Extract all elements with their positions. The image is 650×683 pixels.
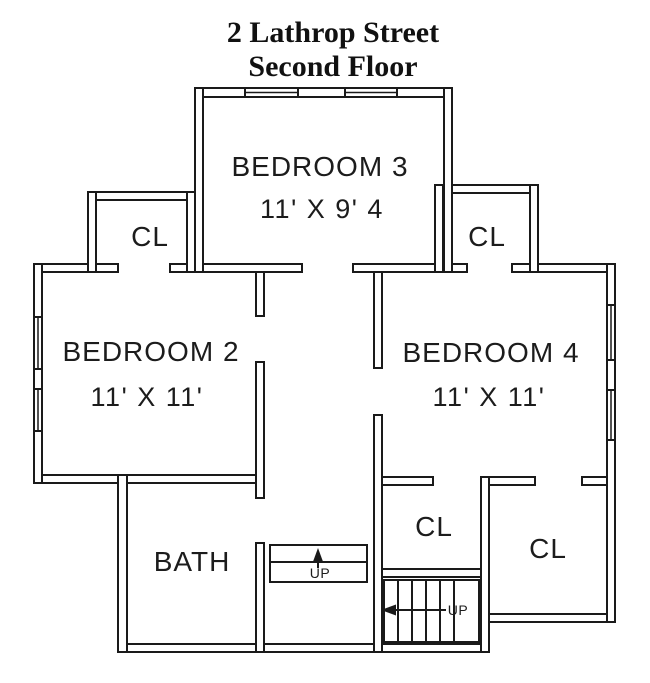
- bedroom4-label: BEDROOM 4: [402, 337, 579, 368]
- closet-bottom-right-label: CL: [529, 533, 567, 564]
- closet-top-right-label: CL: [468, 221, 506, 252]
- wall-bedroom3-right: [444, 88, 452, 272]
- attic-stair-indicator: UP: [270, 545, 367, 582]
- wall-closet-top-left-left: [88, 192, 96, 272]
- wall-bedroom3-top: [195, 88, 452, 97]
- wall-closet-divider: [481, 477, 489, 652]
- wall-mid-band-right: [512, 264, 615, 272]
- window-icon-bedroom3-top-2: [345, 88, 397, 97]
- left-arrow-icon: [381, 605, 446, 616]
- window-icon-bedroom2-left-1: [34, 317, 42, 369]
- wall-bath-left-exterior: [118, 475, 127, 652]
- wall-bedroom4-bottom-left: [382, 477, 433, 485]
- window-icon-bedroom4-right-1: [607, 305, 615, 360]
- wall-closet-top-right-right: [530, 185, 538, 272]
- wall-closet-top-left-right: [187, 192, 195, 272]
- staircase-label: UP: [448, 602, 468, 618]
- window-icon-bedroom2-left-2: [34, 389, 42, 431]
- wall-bedroom3-left: [195, 88, 203, 272]
- wall-hall-left-mid: [256, 362, 264, 498]
- wall-building-bottom: [118, 644, 489, 652]
- wall-mid-band-left: [34, 264, 118, 272]
- bedroom4-dimensions: 11' X 11': [433, 382, 546, 412]
- floor-plan-page: 2 Lathrop Street Second Floor: [0, 0, 650, 683]
- bedroom2-dimensions: 11' X 11': [91, 382, 204, 412]
- plan-title-line1: 2 Lathrop Street: [227, 16, 439, 49]
- wall-hall-right-lower: [374, 415, 382, 652]
- main-staircase: UP: [381, 580, 479, 642]
- wall-bedroom2-bottom: [34, 475, 264, 483]
- window-icon-bedroom3-top-1: [245, 88, 298, 97]
- wall-closet-top-left-top: [88, 192, 195, 200]
- wall-closet-top-right-left: [435, 185, 443, 272]
- bath-label: BATH: [154, 546, 231, 577]
- room-labels: BEDROOM 3 11' X 9' 4 CL CL BEDROOM 2 11'…: [62, 151, 579, 577]
- wall-bedroom2-left-exterior: [34, 264, 42, 483]
- bedroom3-dimensions: 11' X 9' 4: [260, 194, 384, 224]
- plan-title-line2: Second Floor: [248, 50, 417, 83]
- closet-bottom-center-label: CL: [415, 511, 453, 542]
- attic-stair-label: UP: [310, 565, 330, 581]
- wall-bath-right-lower: [256, 543, 264, 652]
- bedroom3-label: BEDROOM 3: [231, 151, 408, 182]
- closet-top-left-label: CL: [131, 221, 169, 252]
- wall-hall-left-upper: [256, 272, 264, 316]
- wall-closet-bottom-right-bottom: [481, 614, 615, 622]
- floor-plan-drawing: 2 Lathrop Street Second Floor: [0, 0, 650, 683]
- bedroom2-label: BEDROOM 2: [62, 336, 239, 367]
- wall-hall-right-upper: [374, 272, 382, 368]
- window-icon-bedroom4-right-2: [607, 390, 615, 440]
- wall-closet-bottom-center-bottom: [374, 569, 489, 577]
